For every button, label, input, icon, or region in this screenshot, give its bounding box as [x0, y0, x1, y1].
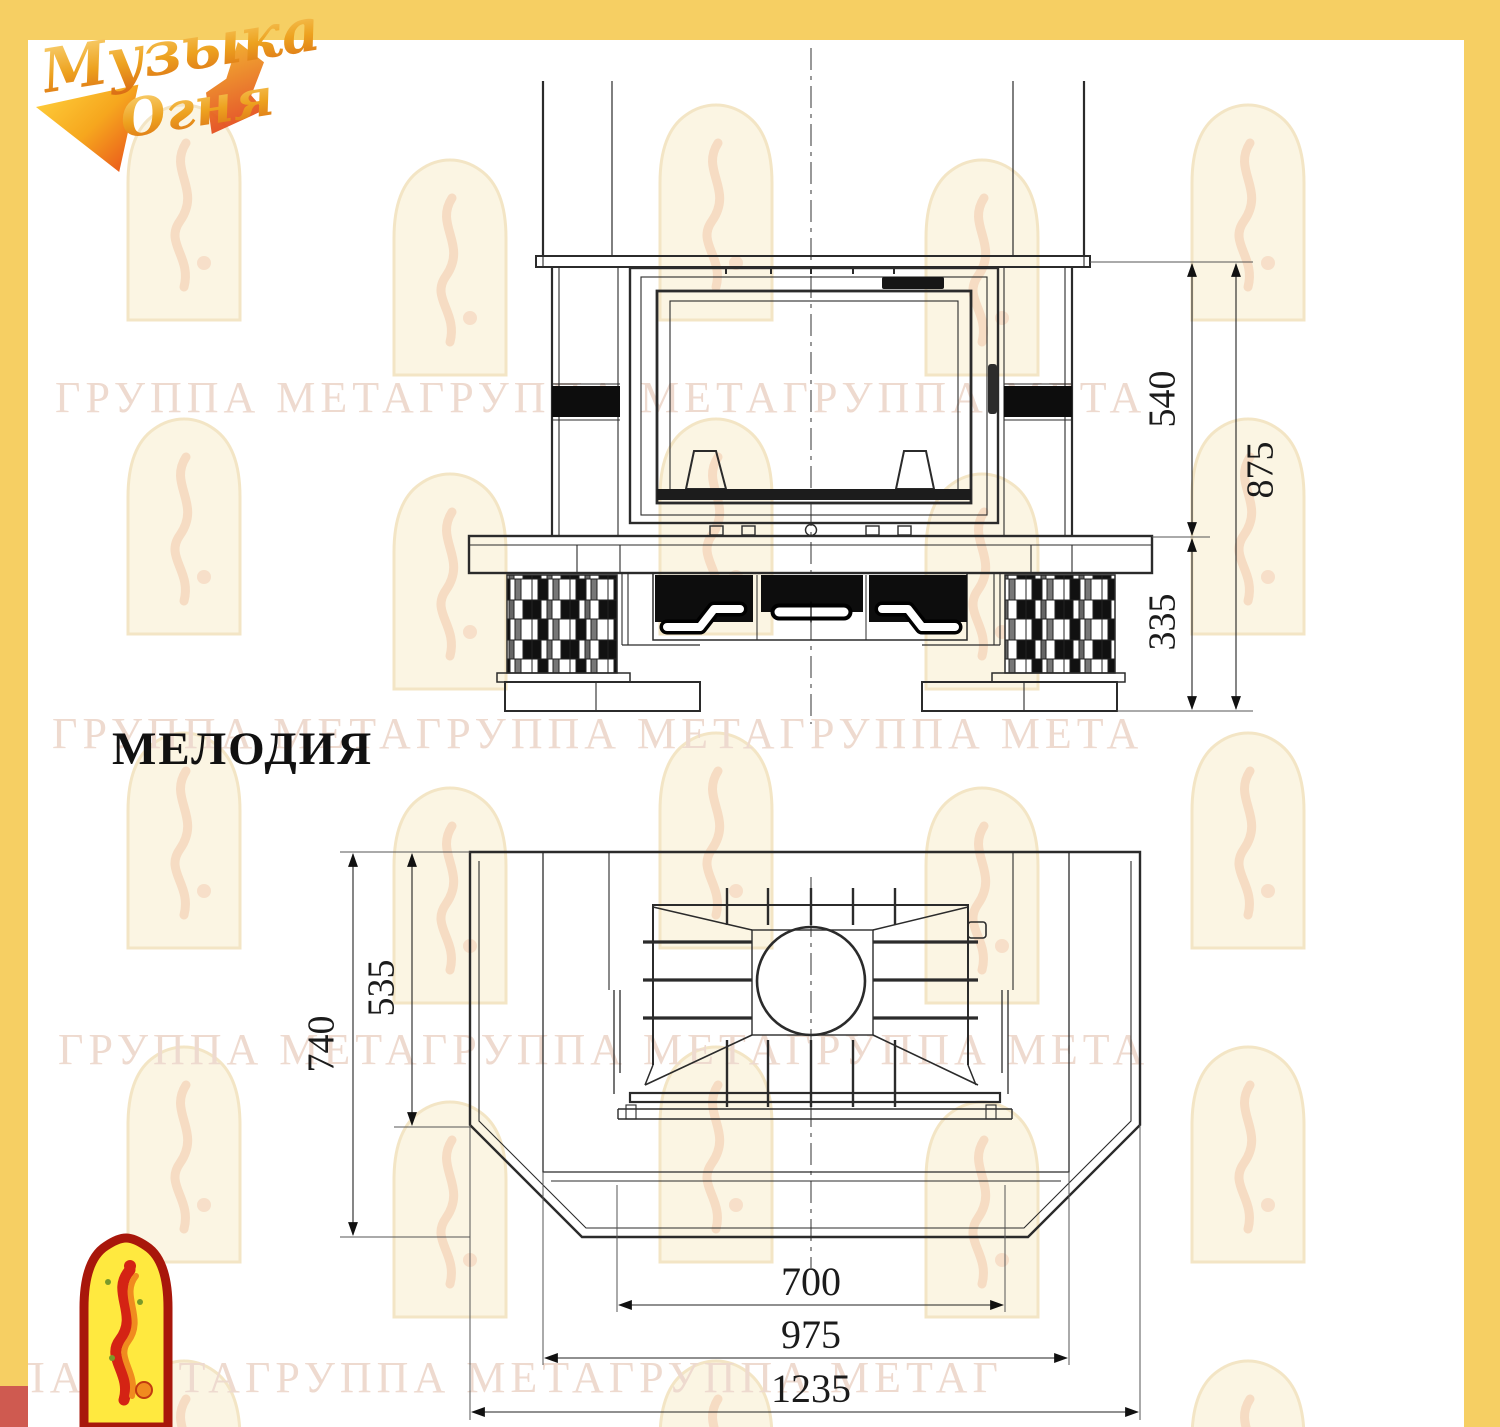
brand-plate: [882, 277, 944, 289]
border-left: [0, 0, 28, 1427]
door-handle: [988, 364, 997, 414]
border-right: [1464, 0, 1500, 1427]
dim-firebox-height: 540: [1142, 371, 1184, 428]
border-left-red-corner: [0, 1386, 28, 1427]
drawing-sheet: ГРУППА МЕТАГРУППА МЕТАГРУППА МЕТА ГРУППА…: [0, 0, 1500, 1427]
model-title: МЕЛОДИЯ: [112, 722, 373, 776]
accent-band-right: [1004, 386, 1072, 417]
dim-total-height: 875: [1240, 442, 1282, 499]
technical-drawing: ГРУППА МЕТАГРУППА МЕТАГРУППА МЕТА ГРУППА…: [0, 0, 1500, 1427]
dim-base-height: 335: [1142, 594, 1184, 651]
dim-depth-total: 740: [301, 1016, 343, 1073]
door-sill: [657, 489, 971, 500]
accent-band-left: [552, 386, 620, 417]
watermark-text-row3: ГРУППА МЕТАГРУППА МЕТАГРУППА МЕТА: [58, 1025, 1149, 1074]
dim-body-width: 975: [781, 1312, 841, 1357]
dim-total-width: 1235: [771, 1366, 851, 1411]
firebird-arch-logo: [84, 1238, 168, 1427]
brand-logo: Музыка Огня: [28, 2, 278, 177]
dim-opening-width: 700: [781, 1259, 841, 1304]
dim-depth-body: 535: [361, 960, 403, 1017]
